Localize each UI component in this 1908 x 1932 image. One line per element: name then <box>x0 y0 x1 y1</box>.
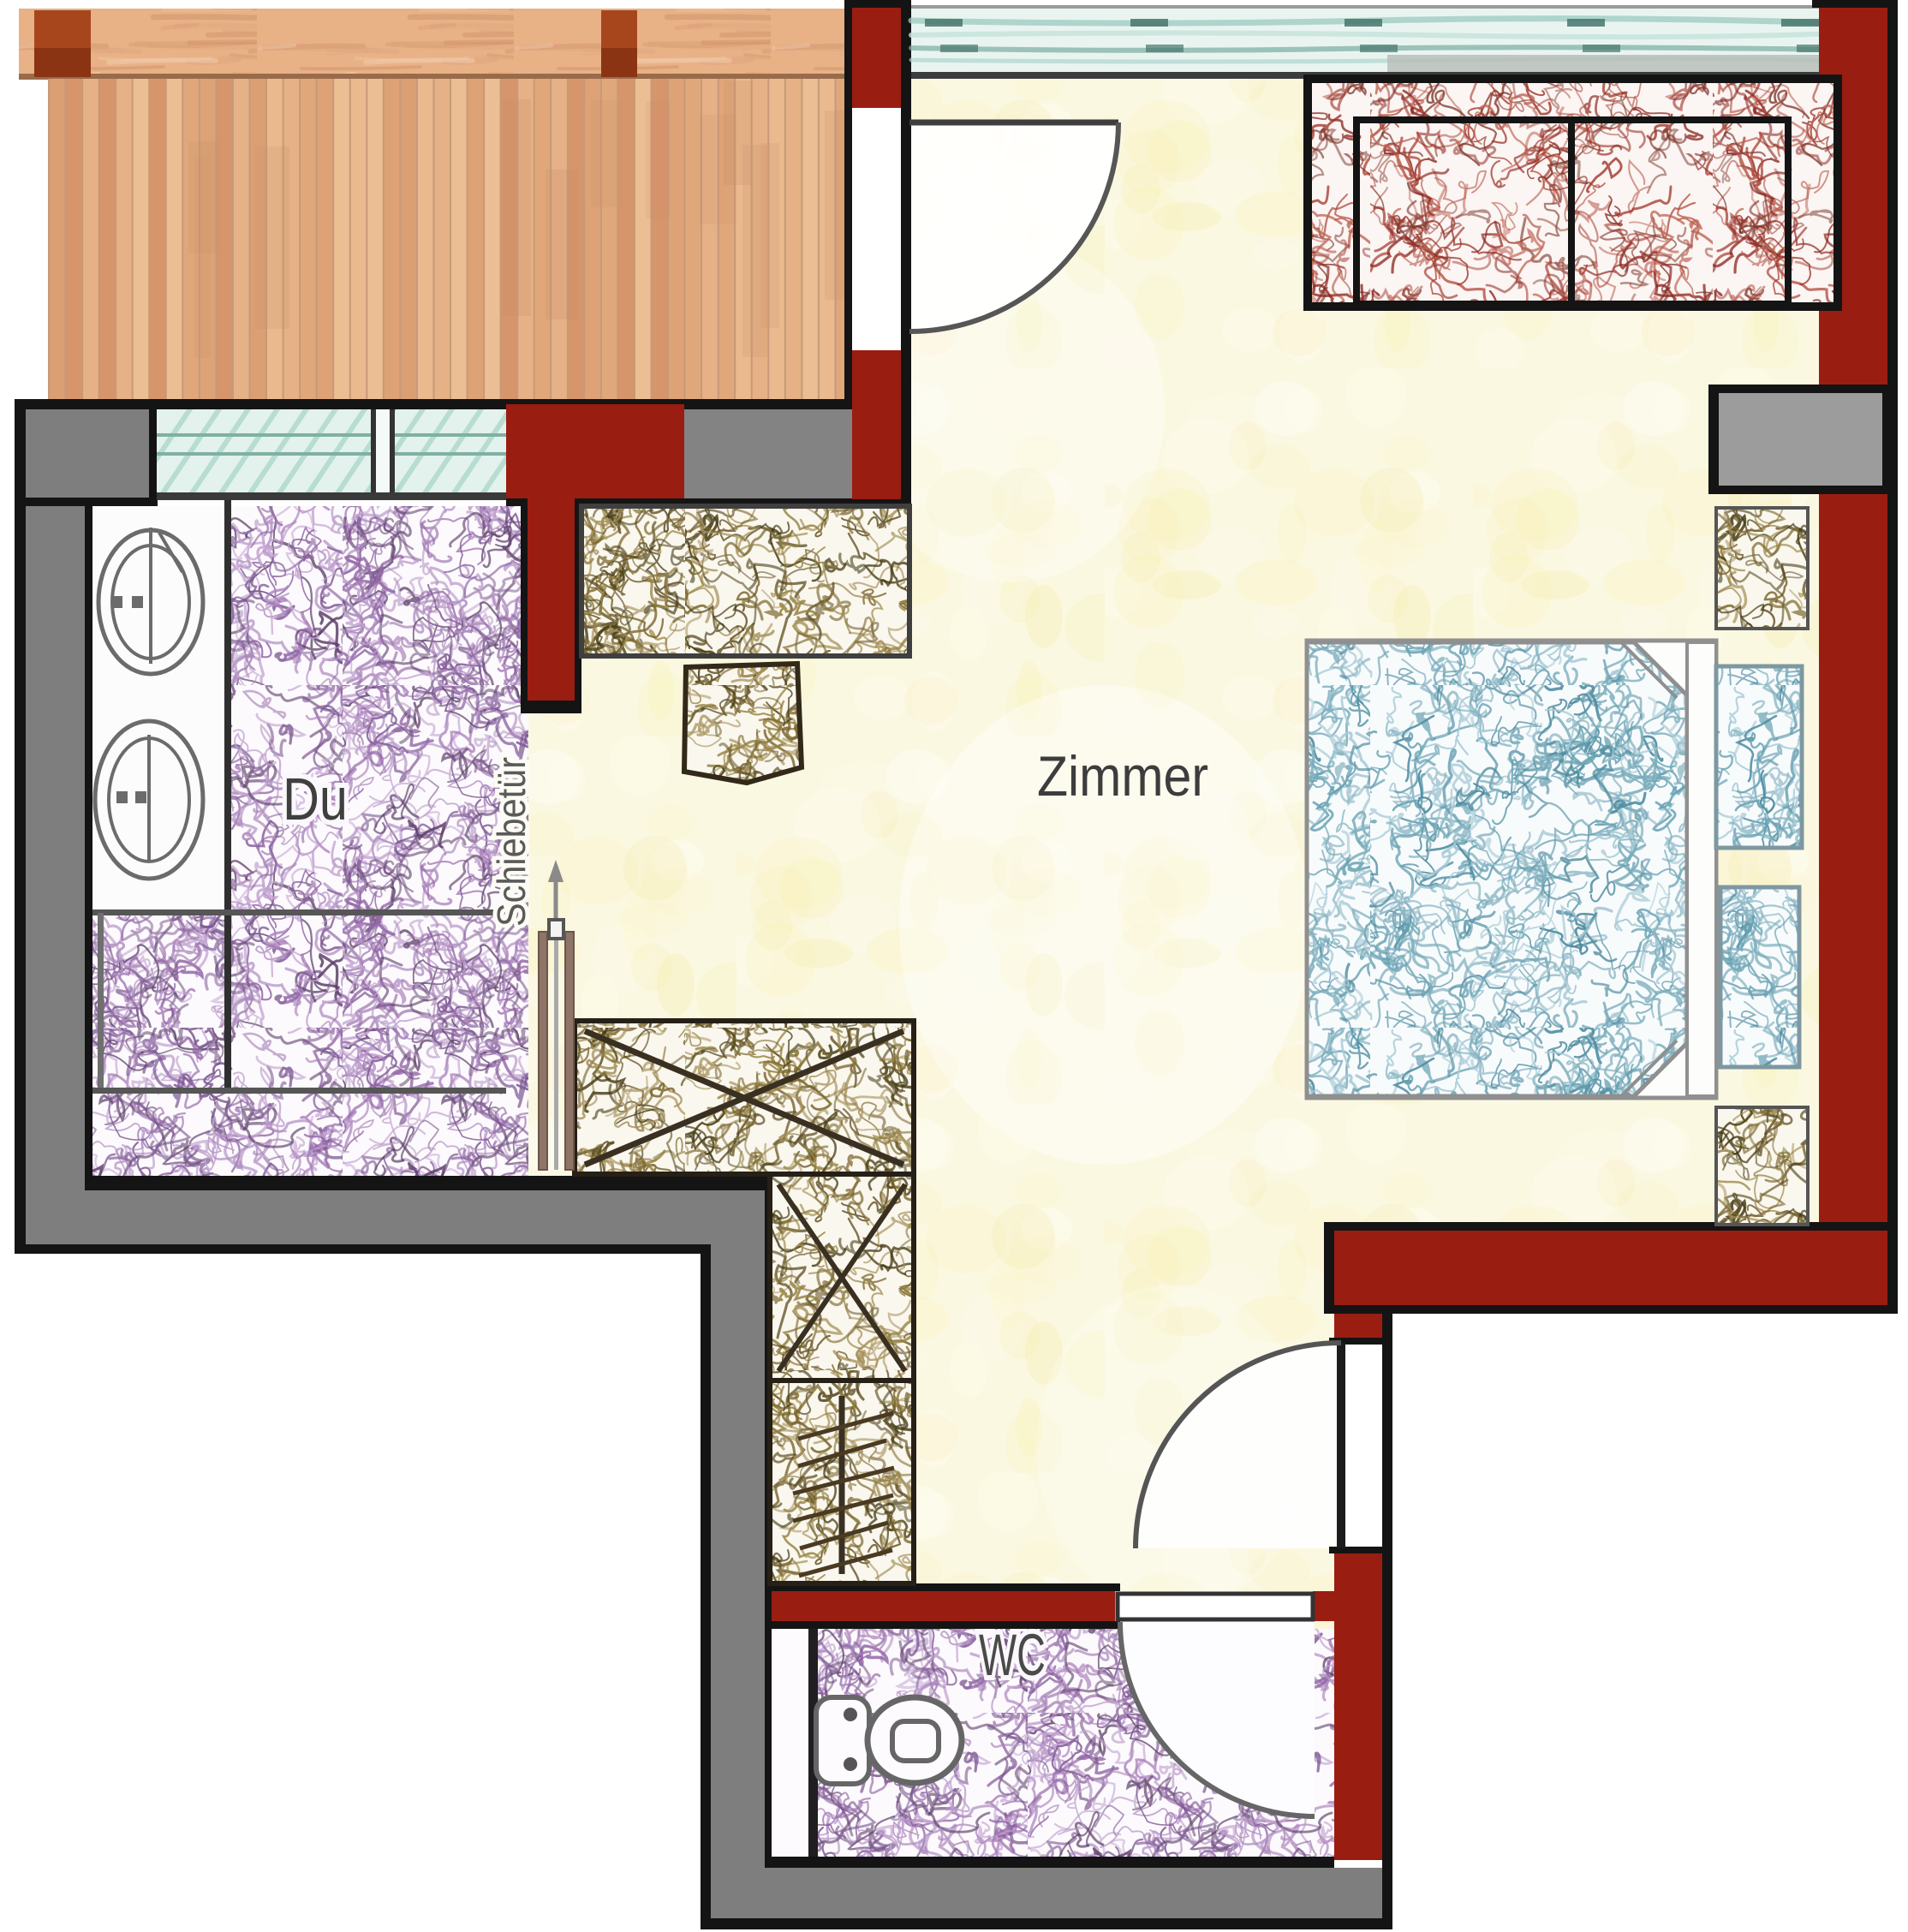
svg-text:WC: WC <box>979 1622 1046 1688</box>
svg-text:Schiebetür: Schiebetür <box>489 757 534 927</box>
svg-text:Du: Du <box>283 766 348 832</box>
svg-text:Zimmer: Zimmer <box>1037 744 1208 808</box>
